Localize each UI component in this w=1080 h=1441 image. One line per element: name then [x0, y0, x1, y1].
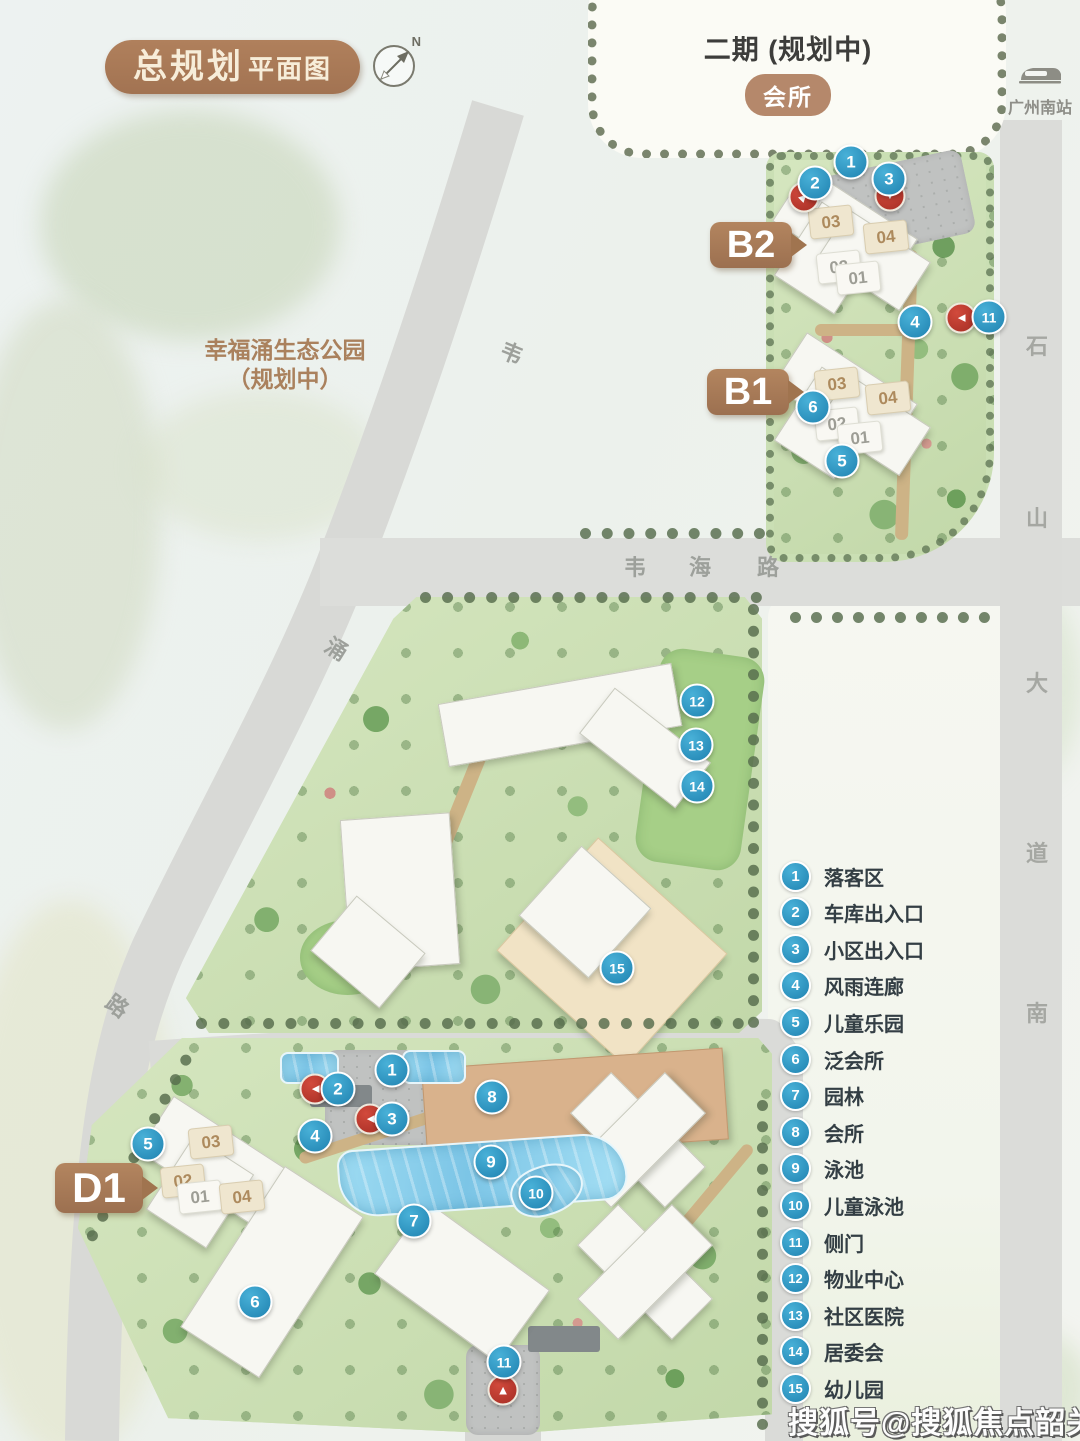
- generated-overlay: 1落客区2车库出入口3小区出入口4风雨连廊5儿童乐园6泛会所7园林8会所9泳池1…: [0, 0, 1080, 1441]
- legend-label: 儿童乐园: [824, 1008, 904, 1037]
- legend-number: 9: [780, 1153, 811, 1184]
- park-label-line1: 幸福涌生态公园: [180, 336, 390, 365]
- legend-number: 3: [780, 934, 811, 965]
- map-marker-4: 4: [898, 305, 933, 340]
- legend-label: 物业中心: [824, 1264, 904, 1293]
- map-marker-15: 15: [600, 951, 635, 986]
- road-label-weihai: 韦: [624, 550, 646, 582]
- legend-label: 小区出入口: [824, 935, 924, 964]
- legend-item-14: 14居委会: [780, 1337, 884, 1367]
- legend-item-7: 7园林: [780, 1081, 864, 1111]
- legend-label: 侧门: [824, 1228, 864, 1257]
- legend-number: 14: [780, 1336, 811, 1367]
- legend-number: 1: [780, 861, 811, 892]
- map-marker-4: 4: [298, 1119, 333, 1154]
- legend-number: 7: [780, 1080, 811, 1111]
- road-label-shishan: 山: [1026, 501, 1048, 533]
- legend-label: 儿童泳池: [824, 1191, 904, 1220]
- legend-item-5: 5儿童乐园: [780, 1007, 904, 1037]
- legend-item-2: 2车库出入口: [780, 898, 924, 928]
- station-callout: 广州南站: [1000, 62, 1080, 118]
- map-marker-3: 3: [872, 162, 907, 197]
- legend-label: 泛会所: [824, 1045, 884, 1074]
- legend-item-3: 3小区出入口: [780, 934, 924, 964]
- legend-number: 6: [780, 1044, 811, 1075]
- road-label-weichong: 路: [100, 986, 137, 1025]
- map-marker-12: 12: [680, 684, 715, 719]
- arrow-icon: ▲: [497, 1384, 510, 1397]
- legend-item-12: 12物业中心: [780, 1264, 904, 1294]
- road-label-shishan: 石: [1026, 329, 1048, 361]
- map-marker-7: 7: [397, 1204, 432, 1239]
- map-marker-6: 6: [238, 1285, 273, 1320]
- park-label-line2: （规划中）: [180, 365, 390, 394]
- map-marker-1: 1: [834, 145, 869, 180]
- legend-number: 12: [780, 1263, 811, 1294]
- map-marker-2: 2: [321, 1072, 356, 1107]
- map-marker-14: 14: [680, 769, 715, 804]
- map-marker-13: 13: [679, 728, 714, 763]
- map-marker-11: 11: [972, 300, 1007, 335]
- building-unit-04: 04: [863, 219, 910, 254]
- road-label-weihai: 路: [757, 550, 779, 582]
- plot-pill-b2: B2: [710, 222, 792, 268]
- legend-item-11: 11侧门: [780, 1227, 864, 1257]
- map-marker-10: 10: [519, 1176, 554, 1211]
- legend-label: 泳池: [824, 1154, 864, 1183]
- legend-label: 会所: [824, 1118, 864, 1147]
- building-unit-03: 03: [808, 204, 855, 239]
- compass-north-label: N: [412, 34, 421, 49]
- building-unit-01: 01: [177, 1179, 224, 1214]
- legend-item-10: 10儿童泳池: [780, 1190, 904, 1220]
- map-marker-5: 5: [825, 444, 860, 479]
- road-label-shishan: 道: [1026, 836, 1048, 868]
- plot-pill-b1: B1: [707, 369, 789, 415]
- phase2-clubhouse-badge: 会所: [745, 74, 831, 116]
- arrow-icon: ▲: [955, 312, 968, 325]
- legend-number: 5: [780, 1007, 811, 1038]
- legend-label: 车库出入口: [824, 898, 924, 927]
- master-plan-map: 总规划 平面图 N 二期 (规划中) 会所 广州南站 幸福涌生态公园 （规划中）…: [0, 0, 1080, 1441]
- train-icon: [1017, 62, 1063, 88]
- map-marker-2: 2: [798, 166, 833, 201]
- legend-item-4: 4风雨连廊: [780, 971, 904, 1001]
- park-label: 幸福涌生态公园 （规划中）: [180, 336, 390, 394]
- phase2-label: 二期 (规划中): [588, 28, 988, 67]
- road-label-shishan: 大: [1026, 666, 1048, 698]
- map-marker-9: 9: [474, 1145, 509, 1180]
- road-label-weichong: 韦: [496, 333, 528, 371]
- watermark: 搜狐号@搜狐焦点韶关站: [788, 1398, 1080, 1441]
- legend-number: 8: [780, 1117, 811, 1148]
- map-marker-3: 3: [375, 1102, 410, 1137]
- legend-item-1: 1落客区: [780, 861, 884, 891]
- legend-number: 4: [780, 970, 811, 1001]
- building-unit-01: 01: [835, 260, 882, 295]
- station-label: 广州南站: [1000, 94, 1080, 118]
- legend-label: 风雨连廊: [824, 971, 904, 1000]
- page-title: 总规划 平面图: [105, 40, 360, 94]
- building-unit-04: 04: [865, 380, 912, 415]
- legend-item-6: 6泛会所: [780, 1044, 884, 1074]
- legend-number: 11: [780, 1227, 811, 1258]
- legend-number: 13: [780, 1300, 811, 1331]
- plot-pill-d1: D1: [55, 1163, 143, 1213]
- legend-item-13: 13社区医院: [780, 1300, 904, 1330]
- building-unit-04: 04: [219, 1179, 266, 1214]
- page-title-main: 总规划: [133, 40, 244, 94]
- map-marker-5: 5: [131, 1127, 166, 1162]
- building-unit-03: 03: [188, 1124, 235, 1159]
- legend-item-8: 8会所: [780, 1117, 864, 1147]
- map-marker-8: 8: [475, 1080, 510, 1115]
- map-marker-11: 11: [487, 1345, 522, 1380]
- legend-label: 落客区: [824, 862, 884, 891]
- legend-item-9: 9泳池: [780, 1154, 864, 1184]
- legend-number: 2: [780, 897, 811, 928]
- map-marker-1: 1: [375, 1053, 410, 1088]
- legend-label: 社区医院: [824, 1301, 904, 1330]
- legend-number: 10: [780, 1190, 811, 1221]
- compass-icon: N: [368, 36, 422, 92]
- legend-label: 园林: [824, 1081, 864, 1110]
- page-title-sub: 平面图: [248, 49, 332, 86]
- road-label-weihai: 海: [689, 550, 711, 582]
- road-label-weichong: 涌: [319, 629, 355, 668]
- legend-label: 居委会: [824, 1337, 884, 1366]
- road-label-shishan: 南: [1026, 996, 1048, 1028]
